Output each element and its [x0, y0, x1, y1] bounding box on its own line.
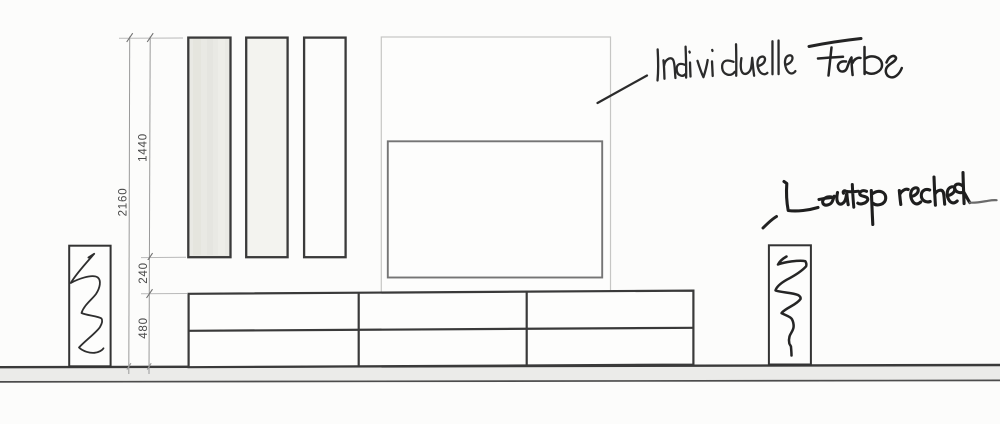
svg-text:1440: 1440	[138, 133, 150, 162]
svg-text:2160: 2160	[118, 188, 130, 217]
svg-text:240: 240	[138, 262, 150, 284]
svg-text:480: 480	[138, 317, 150, 339]
